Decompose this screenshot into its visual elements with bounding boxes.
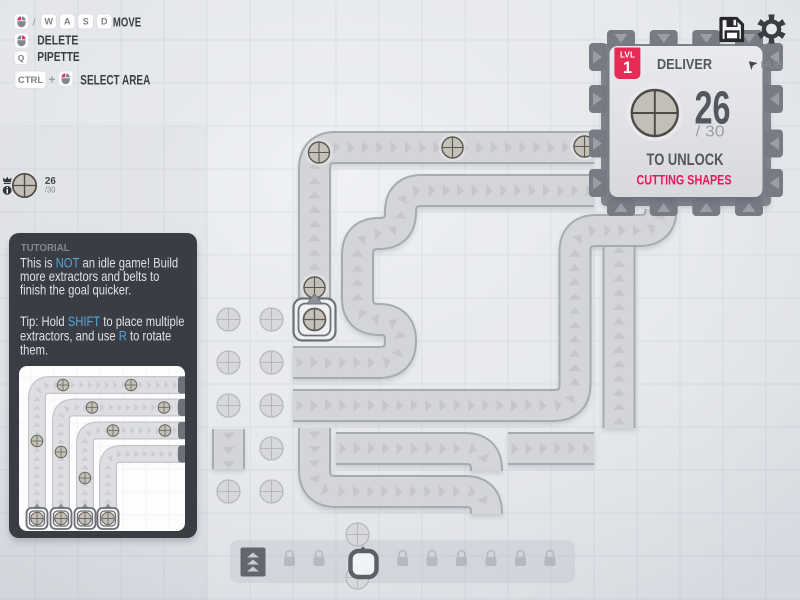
svg-text:+: + <box>48 73 55 87</box>
svg-text:PIPETTE: PIPETTE <box>37 50 79 64</box>
svg-text:S: S <box>83 17 89 27</box>
svg-text:CUTTING SHAPES: CUTTING SHAPES <box>637 173 732 188</box>
svg-text:SELECT AREA: SELECT AREA <box>80 72 150 88</box>
svg-text:W: W <box>44 17 53 27</box>
svg-text:DELIVER: DELIVER <box>657 57 712 73</box>
svg-text:/ 30: / 30 <box>696 124 725 141</box>
svg-text:D: D <box>101 17 108 27</box>
svg-text:TO UNLOCK: TO UNLOCK <box>647 151 724 169</box>
svg-text:them.: them. <box>20 343 48 358</box>
svg-text:CTRL: CTRL <box>18 75 44 86</box>
svg-text:Tip: Hold SHIFT to place multi: Tip: Hold SHIFT to place multiple <box>20 314 185 329</box>
svg-text:TUTORIAL: TUTORIAL <box>21 242 71 254</box>
svg-text:HUB: HUB <box>761 60 784 71</box>
svg-text:Q: Q <box>18 53 25 63</box>
svg-text:extractors, and use R to rotat: extractors, and use R to rotate <box>20 329 171 344</box>
svg-text:finish the goal quicker.: finish the goal quicker. <box>20 283 131 298</box>
svg-text:/30: /30 <box>45 185 56 194</box>
svg-text:MOVE: MOVE <box>113 16 141 30</box>
svg-text:A: A <box>64 17 71 27</box>
svg-text:1: 1 <box>623 59 632 77</box>
svg-text:DELETE: DELETE <box>37 33 78 47</box>
